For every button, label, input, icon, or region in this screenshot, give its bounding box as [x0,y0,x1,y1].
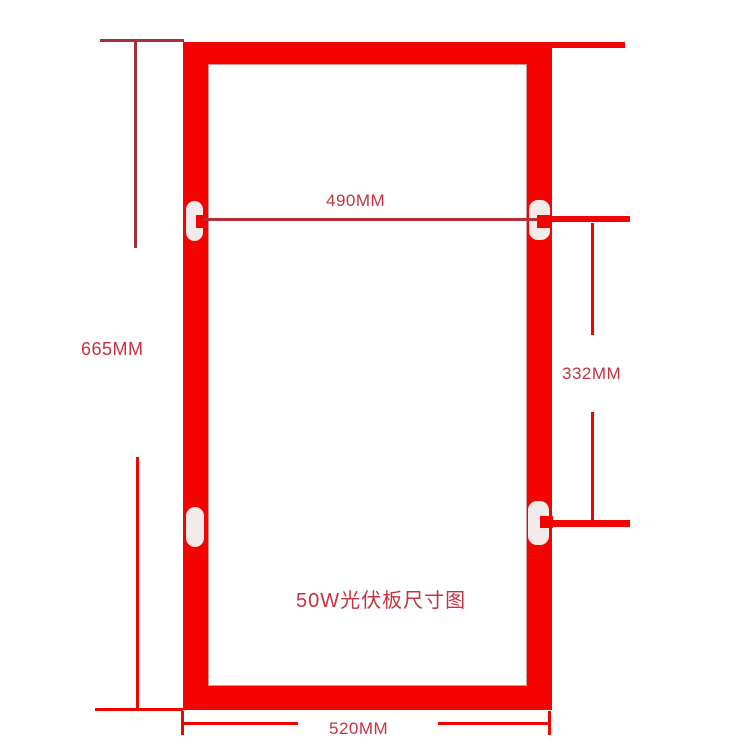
dim-665-bottom-tick [95,708,183,711]
dim-label-332: 332MM [562,364,621,384]
dim-520-line-left [183,722,298,725]
dim-520-line-right [438,722,550,725]
mount-slot-bottom-left [186,507,204,547]
dim-665-line-upper [134,40,137,248]
diagram-title: 50W光伏板尺寸图 [296,584,466,613]
dim-490-line [203,218,545,221]
dim-490-line-right-extension [538,216,630,222]
dim-label-520: 520MM [329,719,388,739]
dim-332-line-upper [591,223,594,335]
panel-dimension-diagram: 665MM 490MM 332MM 520MM 50W光伏板尺寸图 [0,0,750,750]
dim-label-490: 490MM [326,191,385,211]
dim-665-top-tick [100,39,184,42]
dim-332-bottom-tick [540,520,630,527]
dim-665-line-lower [136,457,139,709]
mount-slot-top-left-notch [196,215,205,228]
dim-top-right-extension [552,42,625,48]
dim-label-665: 665MM [81,339,144,360]
dim-332-line-lower [591,412,594,523]
